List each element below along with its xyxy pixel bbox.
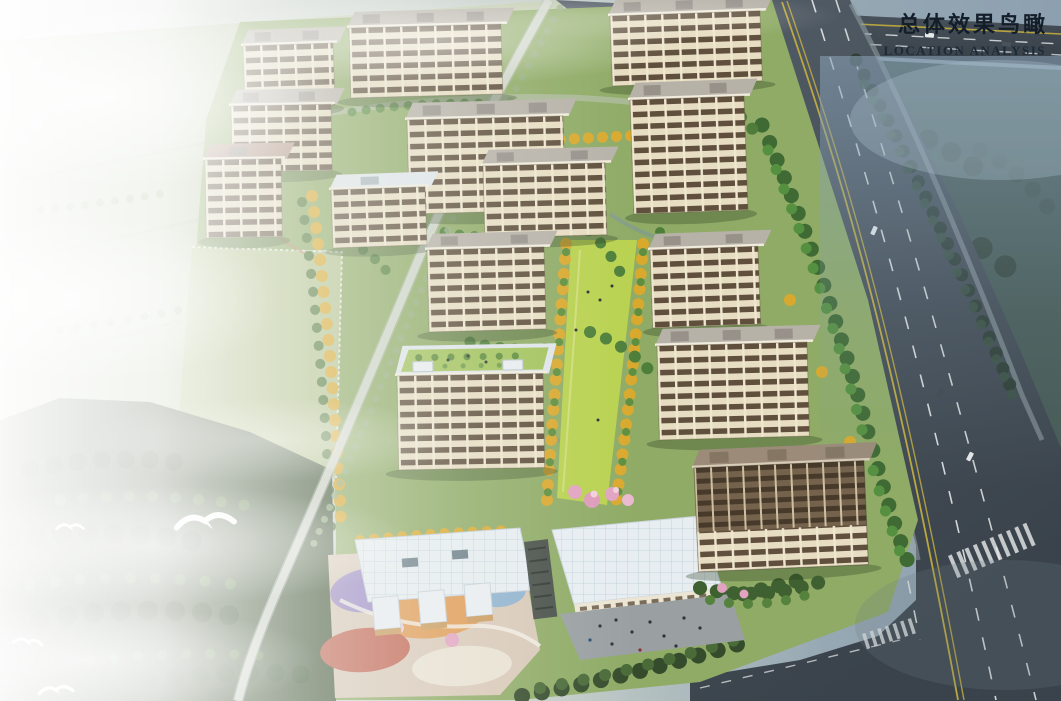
rendering-canvas: 总体效果鸟瞰 LOCATION ANALYSIS bbox=[0, 0, 1061, 701]
aerial-rendering: 总体效果鸟瞰 LOCATION ANALYSIS bbox=[0, 0, 1061, 701]
page-subtitle: LOCATION ANALYSIS bbox=[884, 43, 1046, 58]
title-block: 总体效果鸟瞰 LOCATION ANALYSIS bbox=[884, 12, 1048, 58]
page-title: 总体效果鸟瞰 bbox=[898, 12, 1048, 37]
fog-overlay bbox=[0, 0, 1061, 701]
